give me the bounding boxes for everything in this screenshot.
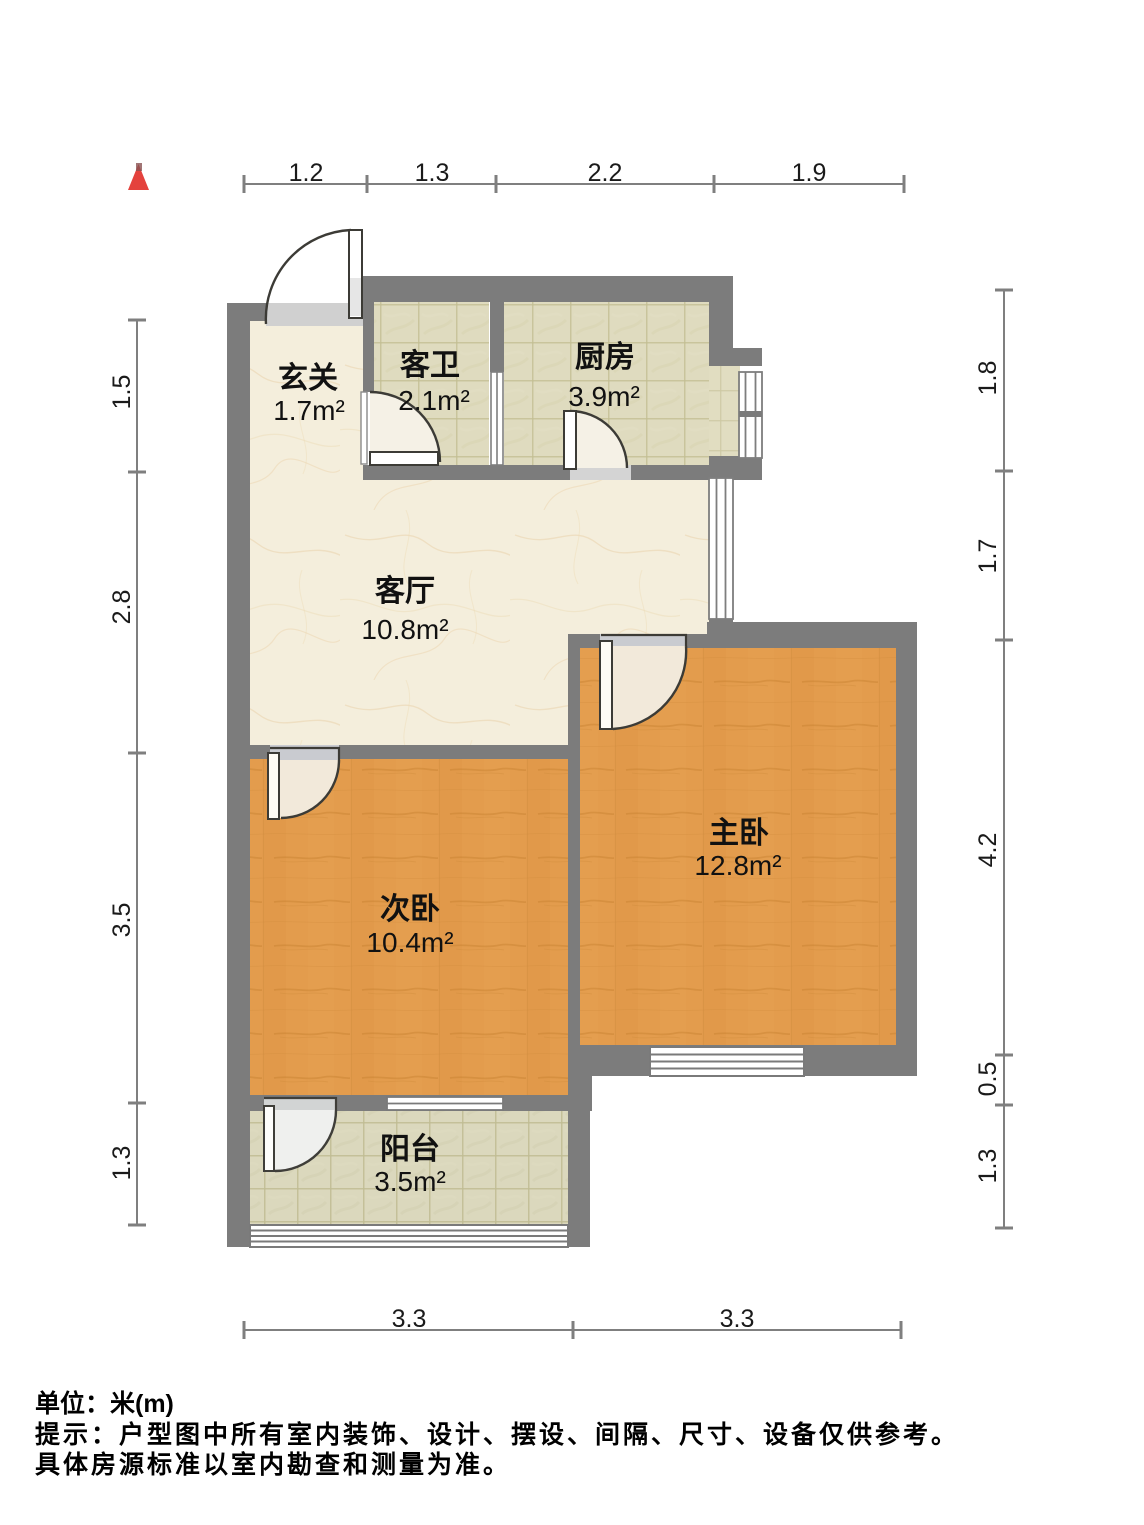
svg-text:1.7m²: 1.7m² xyxy=(273,395,345,426)
svg-text:1.5: 1.5 xyxy=(108,375,136,410)
svg-text:1.3: 1.3 xyxy=(974,1149,1002,1184)
svg-text:客厅: 客厅 xyxy=(375,574,435,608)
svg-text:具体房源标准以室内勘查和测量为准。: 具体房源标准以室内勘查和测量为准。 xyxy=(35,1450,511,1479)
svg-text:4.2: 4.2 xyxy=(974,833,1002,868)
svg-text:1.3: 1.3 xyxy=(108,1146,136,1181)
svg-text:2.8: 2.8 xyxy=(108,590,136,625)
svg-text:1.3: 1.3 xyxy=(415,159,450,187)
svg-text:提示：户型图中所有室内装饰、设计、摆设、间隔、尺寸、设备仅供: 提示：户型图中所有室内装饰、设计、摆设、间隔、尺寸、设备仅供参考。 xyxy=(35,1420,959,1449)
svg-text:阳台: 阳台 xyxy=(380,1132,440,1166)
svg-text:单位：米(m): 单位：米(m) xyxy=(35,1389,174,1418)
svg-text:主卧: 主卧 xyxy=(709,817,769,850)
svg-text:1.2: 1.2 xyxy=(289,159,324,187)
svg-text:3.5: 3.5 xyxy=(108,903,136,938)
svg-text:2.1m²: 2.1m² xyxy=(398,385,470,416)
svg-text:1.7: 1.7 xyxy=(974,539,1002,574)
svg-text:3.9m²: 3.9m² xyxy=(568,381,640,412)
svg-text:1.9: 1.9 xyxy=(792,159,827,187)
svg-text:0.5: 0.5 xyxy=(974,1062,1002,1097)
svg-text:2.2: 2.2 xyxy=(588,159,623,187)
svg-text:12.8m²: 12.8m² xyxy=(694,850,781,881)
svg-text:10.8m²: 10.8m² xyxy=(361,614,448,645)
svg-text:玄关: 玄关 xyxy=(278,361,338,395)
svg-text:1.8: 1.8 xyxy=(974,361,1002,396)
svg-text:10.4m²: 10.4m² xyxy=(366,927,453,958)
svg-text:厨房: 厨房 xyxy=(575,341,635,374)
svg-text:3.3: 3.3 xyxy=(392,1305,427,1333)
svg-text:客卫: 客卫 xyxy=(400,348,460,382)
svg-text:3.3: 3.3 xyxy=(720,1305,755,1333)
svg-text:次卧: 次卧 xyxy=(380,893,440,926)
svg-text:3.5m²: 3.5m² xyxy=(374,1166,446,1197)
